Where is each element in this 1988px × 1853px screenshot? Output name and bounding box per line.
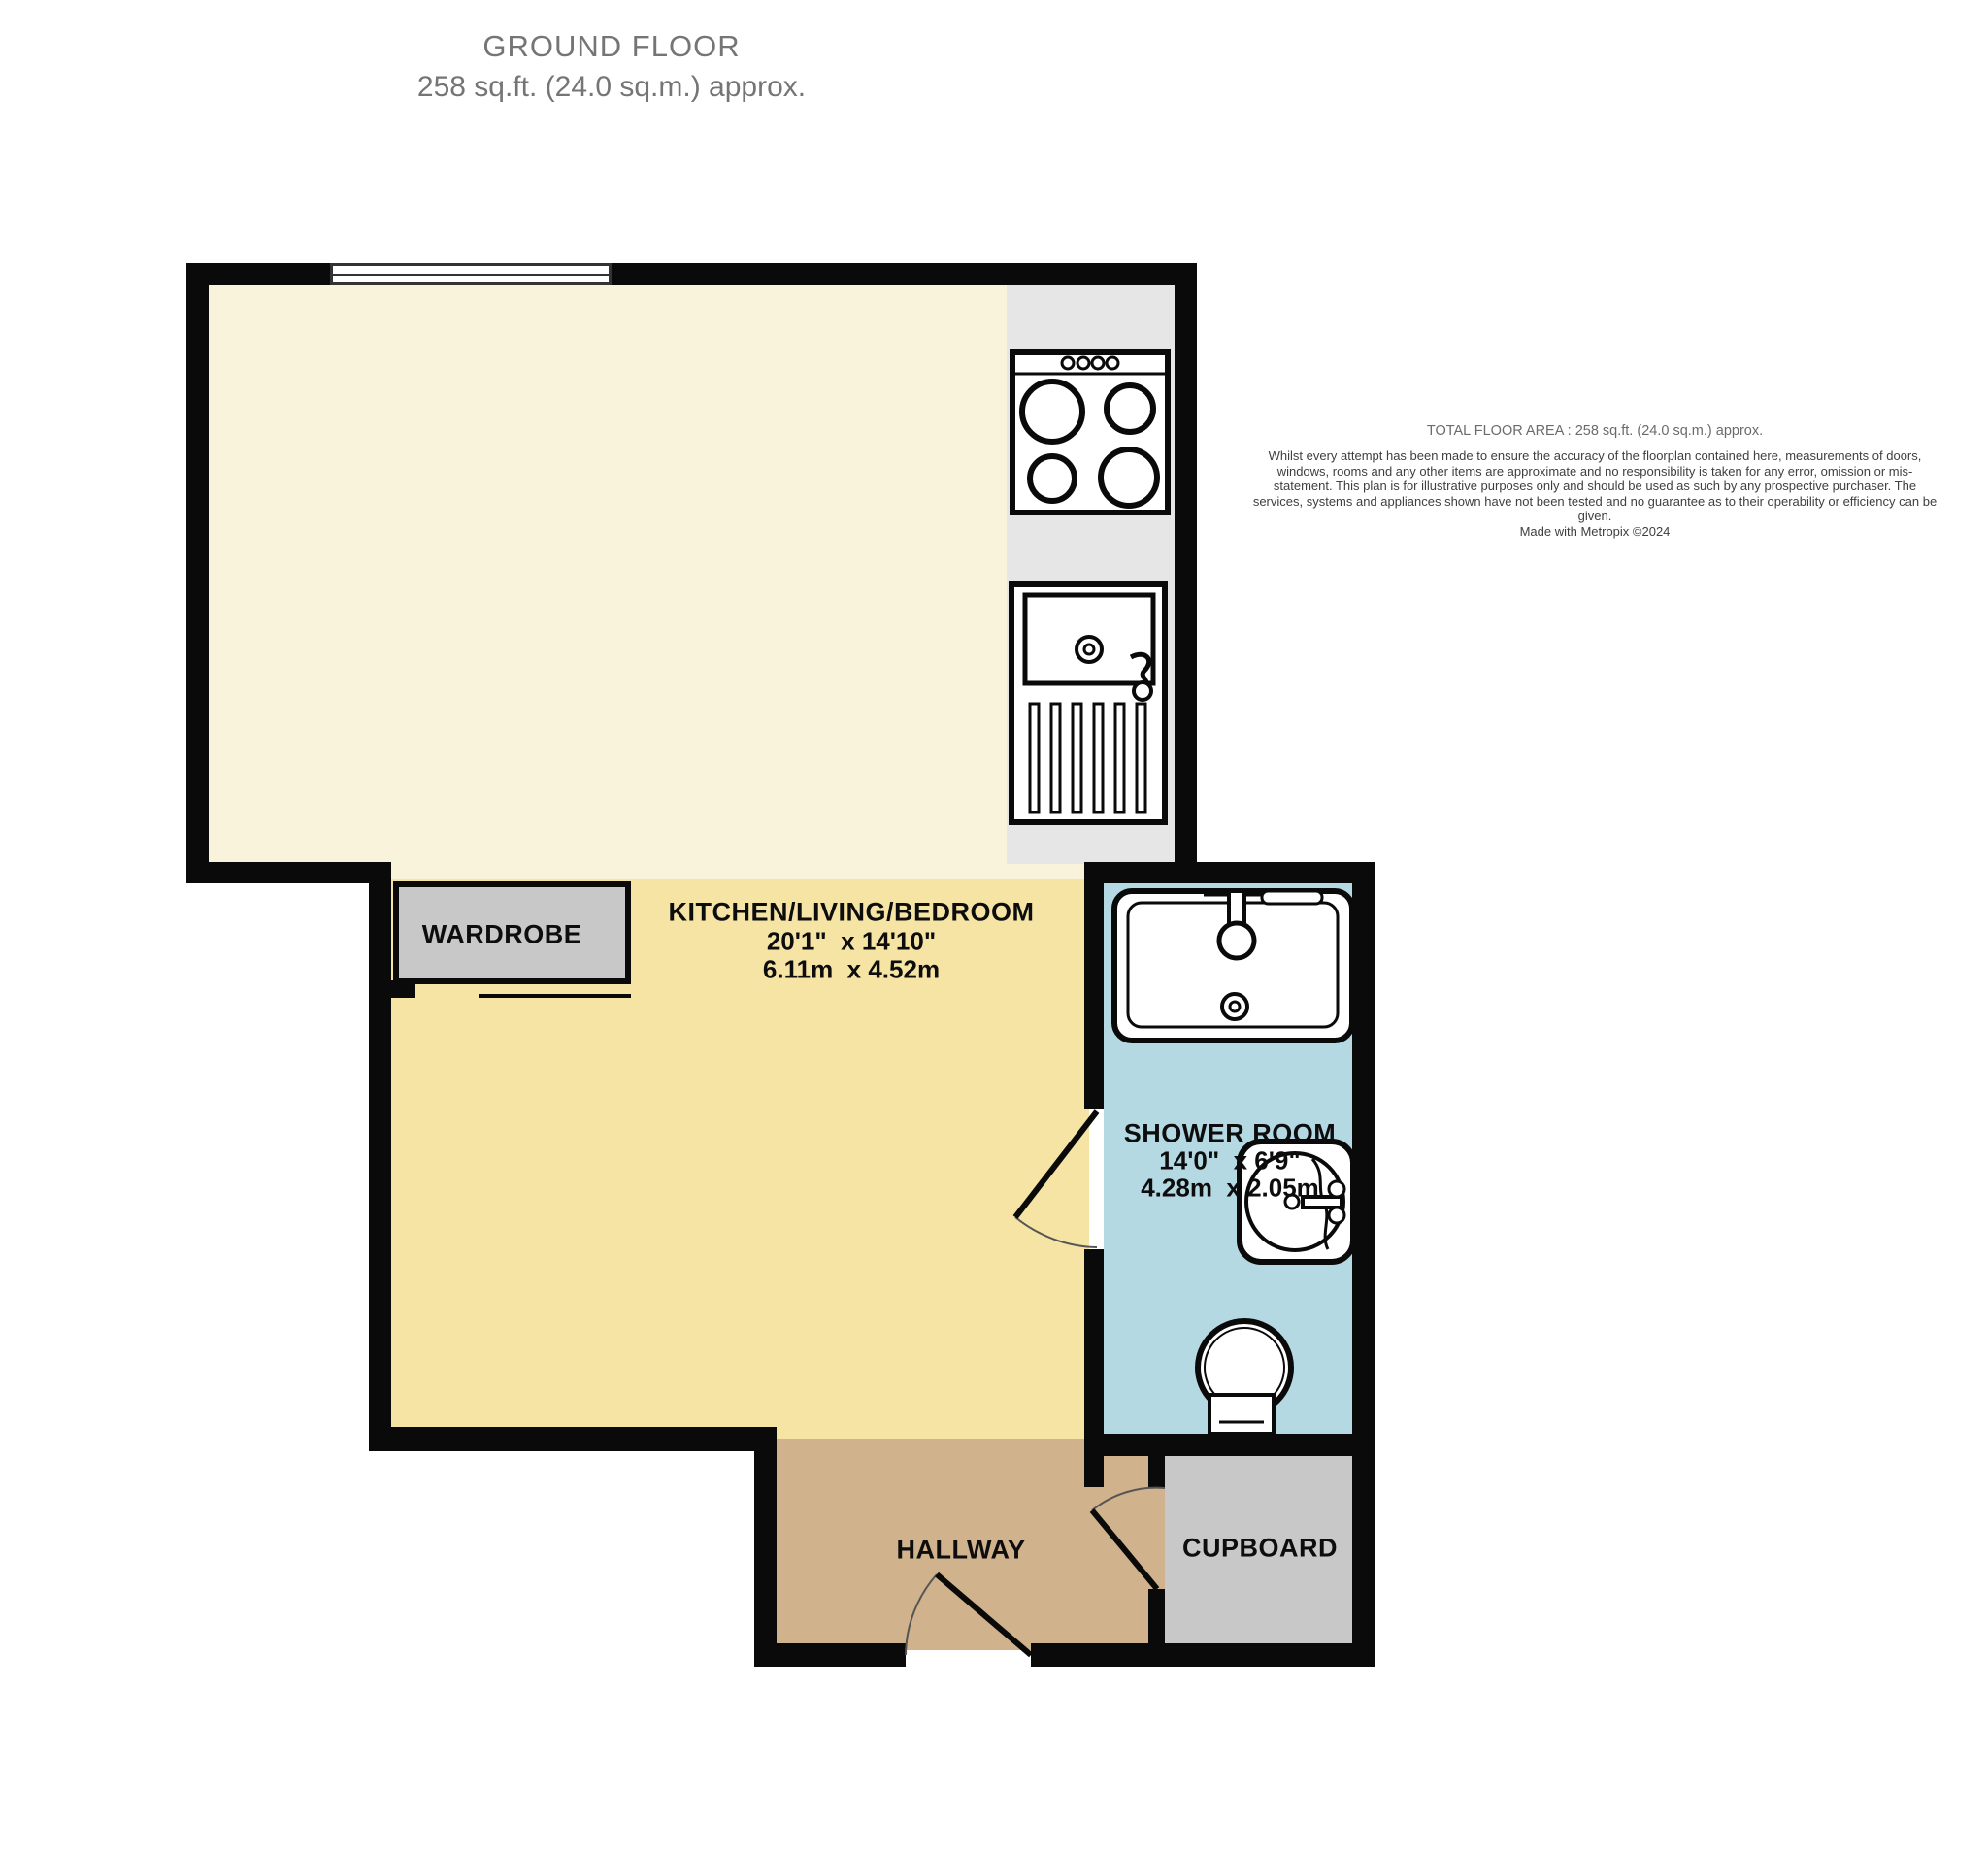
label-klb-dims-imperial: 20'1" x 14'10" xyxy=(767,927,936,957)
shower-door xyxy=(1015,1111,1097,1247)
label-klb-dims-metric: 6.11m x 4.52m xyxy=(763,955,940,985)
label-shower-dims-imperial: 14'0" x 6'9" xyxy=(1159,1146,1300,1176)
disclaimer-body-text: Whilst every attempt has been made to en… xyxy=(1252,448,1938,524)
metropix-credit: Made with Metropix ©2024 xyxy=(1252,524,1938,540)
label-wardrobe: WARDROBE xyxy=(422,920,582,950)
floorplan-canvas: GROUND FLOOR 258 sq.ft. (24.0 sq.m.) app… xyxy=(0,0,1988,1853)
basin-icon xyxy=(1114,891,1352,1041)
cupboard-door xyxy=(1092,1488,1165,1589)
floor-title-area: 258 sq.ft. (24.0 sq.m.) approx. xyxy=(340,71,883,104)
label-hallway: HALLWAY xyxy=(896,1536,1025,1566)
floor-title: GROUND FLOOR 258 sq.ft. (24.0 sq.m.) app… xyxy=(340,29,883,104)
toilet-icon xyxy=(1198,1321,1291,1434)
label-shower-room: SHOWER ROOM xyxy=(1124,1119,1337,1149)
total-floor-area-text: TOTAL FLOOR AREA : 258 sq.ft. (24.0 sq.m… xyxy=(1252,423,1938,439)
label-cupboard: CUPBOARD xyxy=(1182,1534,1338,1564)
kitchen-sink-icon xyxy=(1011,584,1165,822)
stove-icon xyxy=(1012,352,1168,513)
label-kitchen-living-bedroom: KITCHEN/LIVING/BEDROOM xyxy=(668,898,1034,928)
disclaimer-block: TOTAL FLOOR AREA : 258 sq.ft. (24.0 sq.m… xyxy=(1252,423,1938,539)
front-door xyxy=(906,1574,1031,1655)
label-shower-dims-metric: 4.28m x 2.05m xyxy=(1141,1174,1319,1204)
floor-title-name: GROUND FLOOR xyxy=(340,29,883,64)
